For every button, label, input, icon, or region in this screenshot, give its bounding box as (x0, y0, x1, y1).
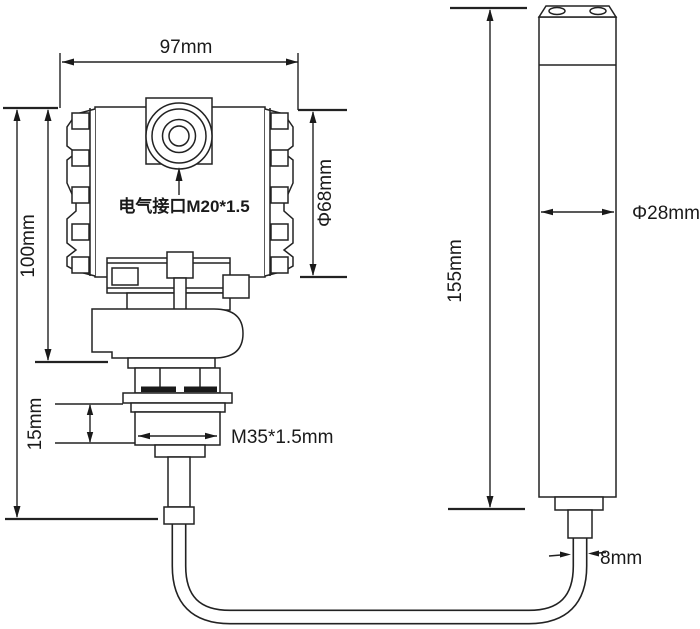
probe-top-hole-left (549, 8, 565, 15)
gasket-left (141, 387, 176, 393)
cable-entry-tube (168, 457, 190, 507)
arrowhead (87, 432, 93, 443)
dim-label-thread-spec: M35*1.5mm (231, 427, 333, 448)
connection-cable (179, 515, 580, 617)
lower-collar (155, 445, 205, 457)
arrowhead (45, 349, 52, 361)
cooling-fins-right (265, 108, 293, 276)
probe-cable-gland (568, 510, 592, 538)
flange-collar (131, 403, 225, 412)
arrowhead (487, 496, 494, 508)
probe-top-hole-right (590, 8, 606, 15)
cooling-fins-left (67, 108, 95, 276)
dim-thread-length: 15mm (25, 398, 135, 451)
tube-end-fitting (164, 507, 194, 524)
dim-label-head-width: 97mm (160, 37, 213, 58)
probe-bottom-step (555, 497, 603, 510)
dim-label-probe-diameter: Φ28mm (632, 203, 700, 224)
arrowhead (14, 109, 21, 121)
gasket-right (184, 387, 217, 393)
hex-nut (135, 368, 220, 393)
dim-probe-length: 155mm (445, 8, 527, 509)
dim-label-head-diameter: Φ68mm (315, 159, 336, 227)
thread-block-m35 (135, 412, 220, 445)
dim-cable-diameter: 8mm (549, 548, 642, 569)
level-probe (539, 6, 616, 538)
arrowhead (87, 404, 93, 415)
label-electrical-interface: 电气接口M20*1.5 (118, 196, 249, 216)
terminal-bracket (107, 252, 249, 310)
capsule-base-plate (128, 358, 215, 368)
dim-label-cable-diameter: 8mm (600, 548, 642, 569)
dim-label-thread-length: 15mm (25, 398, 46, 451)
connection-capsule (92, 309, 243, 358)
arrowhead (588, 551, 599, 557)
arrowhead (62, 59, 74, 66)
arrowhead (487, 9, 494, 21)
dim-label-probe-length: 155mm (445, 239, 466, 302)
arrowhead (310, 111, 317, 123)
drawing-canvas: 97mm 100mm Φ68mm 电气接口M20*1.5 (0, 0, 700, 629)
probe-body (539, 17, 616, 497)
arrowhead (310, 264, 317, 276)
arrowhead (14, 506, 21, 518)
arrowhead (560, 552, 571, 558)
arrowhead (286, 59, 298, 66)
dim-head-diameter: Φ68mm (298, 110, 347, 277)
electrical-port (146, 98, 212, 169)
dim-label-head-height: 100mm (18, 214, 39, 277)
dimension-drawing: 97mm 100mm Φ68mm 电气接口M20*1.5 (0, 0, 700, 629)
flange-plate (123, 393, 232, 403)
arrowhead (45, 109, 52, 121)
